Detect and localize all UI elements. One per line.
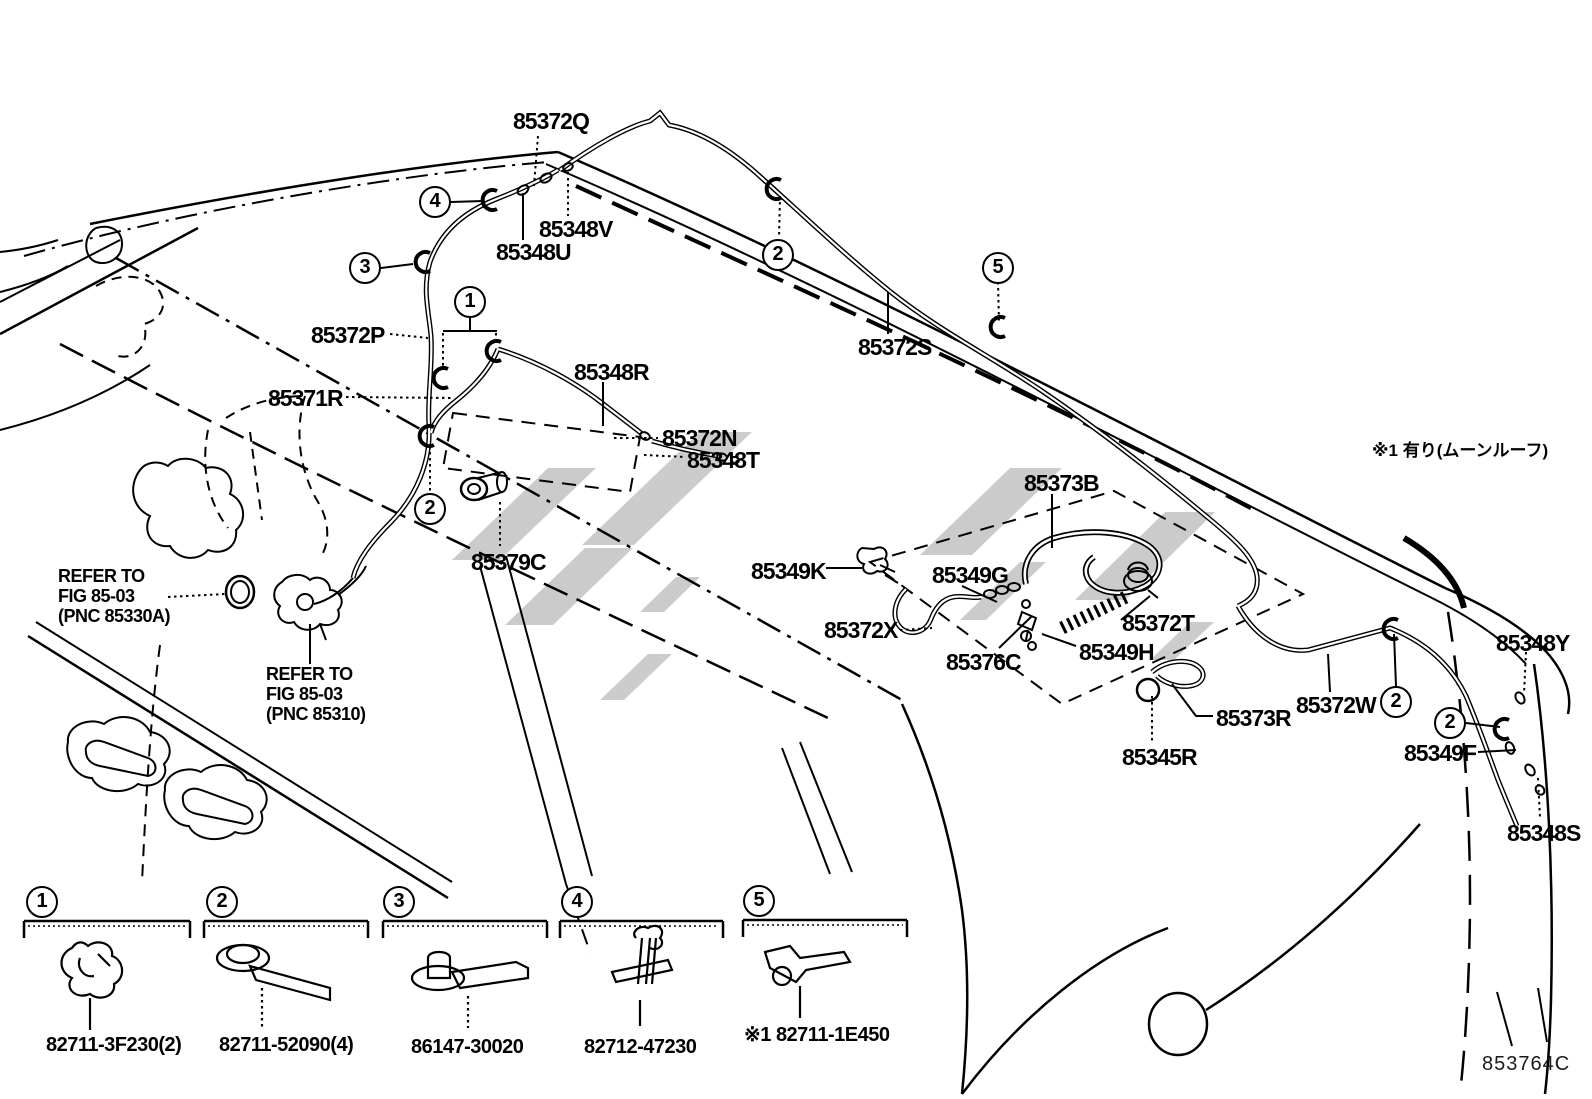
callout-1: 1: [454, 286, 486, 318]
callout-4: 4: [419, 186, 451, 218]
callout-2-rear-a: 2: [1380, 686, 1412, 718]
part-label-85349G: 85349G: [932, 562, 1008, 589]
legend-callout-5: 5: [743, 885, 775, 917]
part-label-85372S: 85372S: [858, 334, 931, 361]
legend-part-5: ※1 82711-1E450: [744, 1022, 889, 1047]
part-label-85345R: 85345R: [1122, 744, 1197, 771]
diagram-art: [0, 0, 1592, 1099]
refer-note-85310: REFER TO FIG 85-03 (PNC 85310): [266, 664, 366, 724]
parts-diagram-page: 85372Q 85348V 85348U 85372P 85371R 85348…: [0, 0, 1592, 1099]
legend-clip-2: [217, 945, 330, 1030]
part-label-85348Y: 85348Y: [1496, 630, 1569, 657]
legend-part-1: 82711-3F230(2): [46, 1034, 181, 1057]
legend-callout-1: 1: [26, 886, 58, 918]
part-label-85372T: 85372T: [1122, 610, 1194, 637]
callout-3: 3: [349, 252, 381, 284]
part-label-85371R: 85371R: [268, 385, 343, 412]
part-label-85348T: 85348T: [687, 447, 759, 474]
callout-2-left: 2: [414, 493, 446, 525]
legend-clip-1: [62, 942, 123, 1030]
part-label-85372Q: 85372Q: [513, 108, 589, 135]
part-label-85373R: 85373R: [1216, 705, 1291, 732]
legend-art: [24, 920, 907, 1030]
part-label-85372W: 85372W: [1296, 692, 1376, 719]
part-label-85349H: 85349H: [1079, 639, 1154, 666]
legend-callout-2: 2: [206, 886, 238, 918]
callout-2-roof: 2: [762, 239, 794, 271]
legend-part-4: 82712-47230: [584, 1036, 696, 1059]
part-label-85373B: 85373B: [1024, 470, 1099, 497]
refer-note-85330a: REFER TO FIG 85-03 (PNC 85330A): [58, 566, 170, 626]
part-label-85348R: 85348R: [574, 359, 649, 386]
legend-clip-5: [765, 946, 850, 1018]
callout-2-rear-b: 2: [1434, 707, 1466, 739]
legend-part-3: 86147-30020: [411, 1036, 523, 1059]
callout-5: 5: [982, 252, 1014, 284]
legend-part-2: 82711-52090(4): [219, 1034, 353, 1057]
legend-clip-3: [412, 952, 528, 1028]
part-label-85372X: 85372X: [824, 617, 897, 644]
part-label-85348S: 85348S: [1507, 820, 1580, 847]
part-label-85379C: 85379C: [471, 549, 546, 576]
figure-code: 853764C: [1482, 1053, 1570, 1076]
legend-callout-4: 4: [561, 886, 593, 918]
corrugated-hose: [1062, 596, 1128, 628]
legend-callout-3: 3: [383, 886, 415, 918]
part-label-85349F: 85349F: [1404, 740, 1476, 767]
part-label-85376C: 85376C: [946, 649, 1021, 676]
part-label-85372P: 85372P: [311, 322, 384, 349]
part-label-85348U: 85348U: [496, 239, 571, 266]
legend-clip-4: [612, 926, 672, 1026]
part-label-85349K: 85349K: [751, 558, 826, 585]
moonroof-note: ※1 有り(ムーンルーフ): [1372, 436, 1548, 461]
vehicle-outline: [0, 152, 1569, 1094]
